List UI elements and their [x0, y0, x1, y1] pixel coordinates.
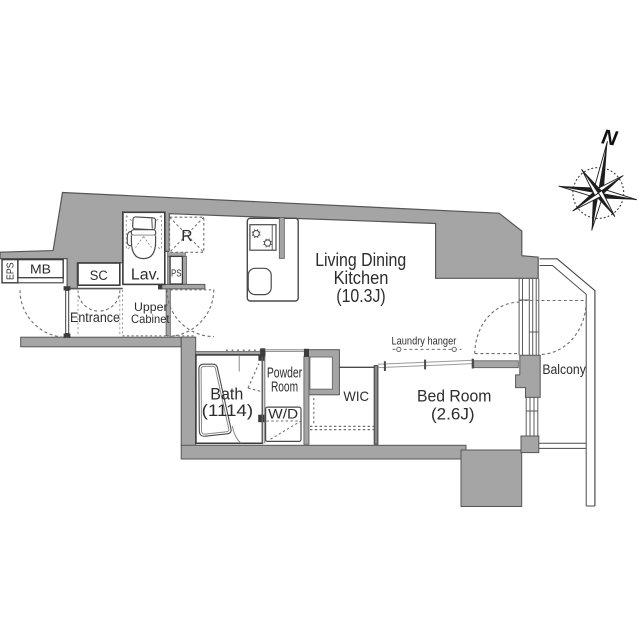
svg-text:Cabinet: Cabinet: [131, 312, 170, 326]
svg-text:Bath: Bath: [210, 385, 243, 403]
svg-text:N: N: [600, 125, 620, 150]
svg-text:Balcony: Balcony: [542, 362, 586, 377]
svg-text:Kitchen: Kitchen: [334, 268, 389, 288]
svg-text:MB: MB: [30, 261, 51, 276]
svg-text:(2.6J): (2.6J): [431, 406, 475, 424]
svg-text:W/D: W/D: [268, 407, 298, 422]
svg-text:(10.3J): (10.3J): [336, 286, 385, 306]
svg-text:Entrance: Entrance: [70, 310, 120, 325]
svg-text:EPS: EPS: [5, 262, 16, 280]
svg-text:PS: PS: [171, 268, 182, 279]
svg-text:R: R: [181, 228, 192, 245]
svg-text:SC: SC: [90, 268, 108, 283]
svg-text:Living Dining: Living Dining: [315, 250, 406, 270]
svg-text:Laundry hanger: Laundry hanger: [392, 336, 457, 348]
svg-text:(1114): (1114): [202, 402, 254, 420]
svg-text:Bed Room: Bed Room: [417, 387, 491, 405]
svg-text:Room: Room: [271, 380, 298, 396]
svg-text:Lav.: Lav.: [131, 267, 160, 284]
svg-text:WIC: WIC: [343, 388, 369, 404]
